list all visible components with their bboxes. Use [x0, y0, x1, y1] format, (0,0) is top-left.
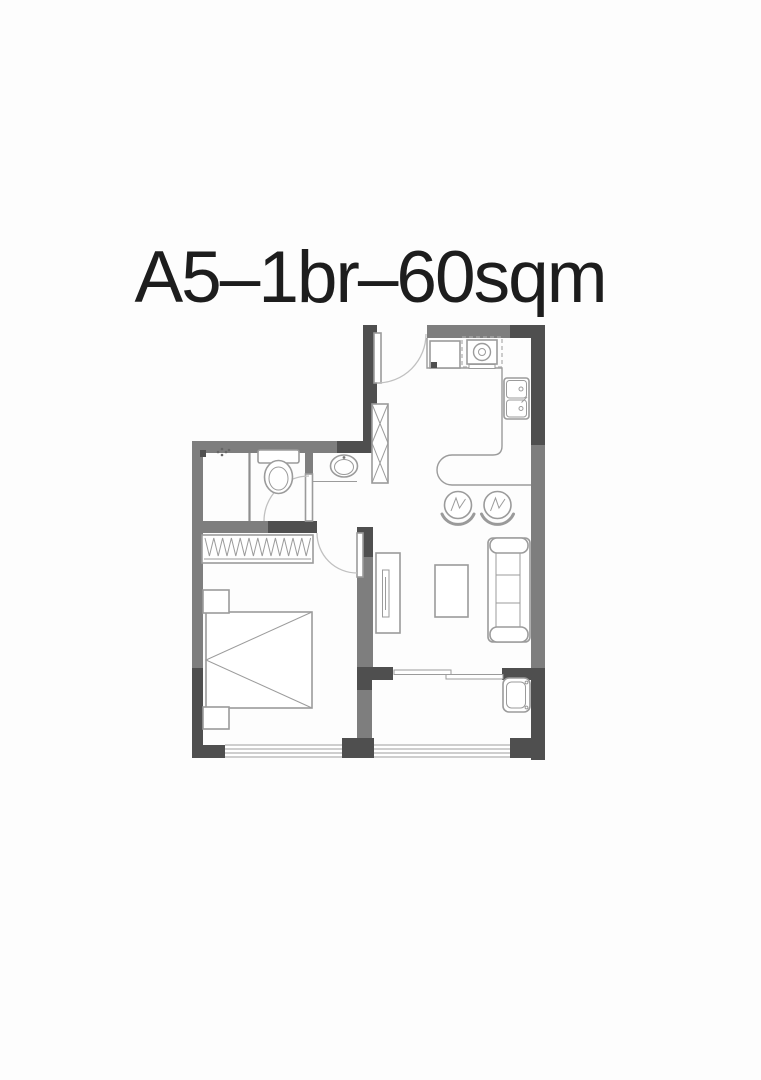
balcony — [503, 678, 530, 712]
nightstand — [203, 707, 229, 729]
floor-drain — [200, 450, 206, 457]
fridge — [430, 341, 460, 368]
duct-shaft — [372, 404, 388, 483]
balcony-window — [374, 744, 510, 758]
stove — [467, 340, 497, 369]
nightstand — [203, 590, 229, 613]
tv-stand — [376, 553, 400, 633]
bed — [206, 612, 312, 708]
kitchen — [427, 337, 531, 524]
floorplan-drawing — [0, 0, 761, 1080]
entry-door — [374, 333, 426, 383]
bedroom — [202, 535, 313, 729]
bar-stool — [482, 492, 514, 525]
bedroom-window — [225, 744, 342, 758]
bathroom — [200, 448, 358, 521]
sliding-door — [394, 670, 503, 679]
living-room — [376, 538, 530, 642]
kitchen-sink — [504, 378, 529, 419]
vanity-sink — [313, 455, 358, 482]
washing-machine — [503, 678, 530, 712]
toilet — [258, 450, 299, 494]
wardrobe — [202, 535, 313, 563]
coffee-table — [435, 565, 468, 617]
sofa — [488, 538, 530, 642]
bar-stool — [442, 492, 474, 525]
bedroom-door — [317, 533, 363, 577]
